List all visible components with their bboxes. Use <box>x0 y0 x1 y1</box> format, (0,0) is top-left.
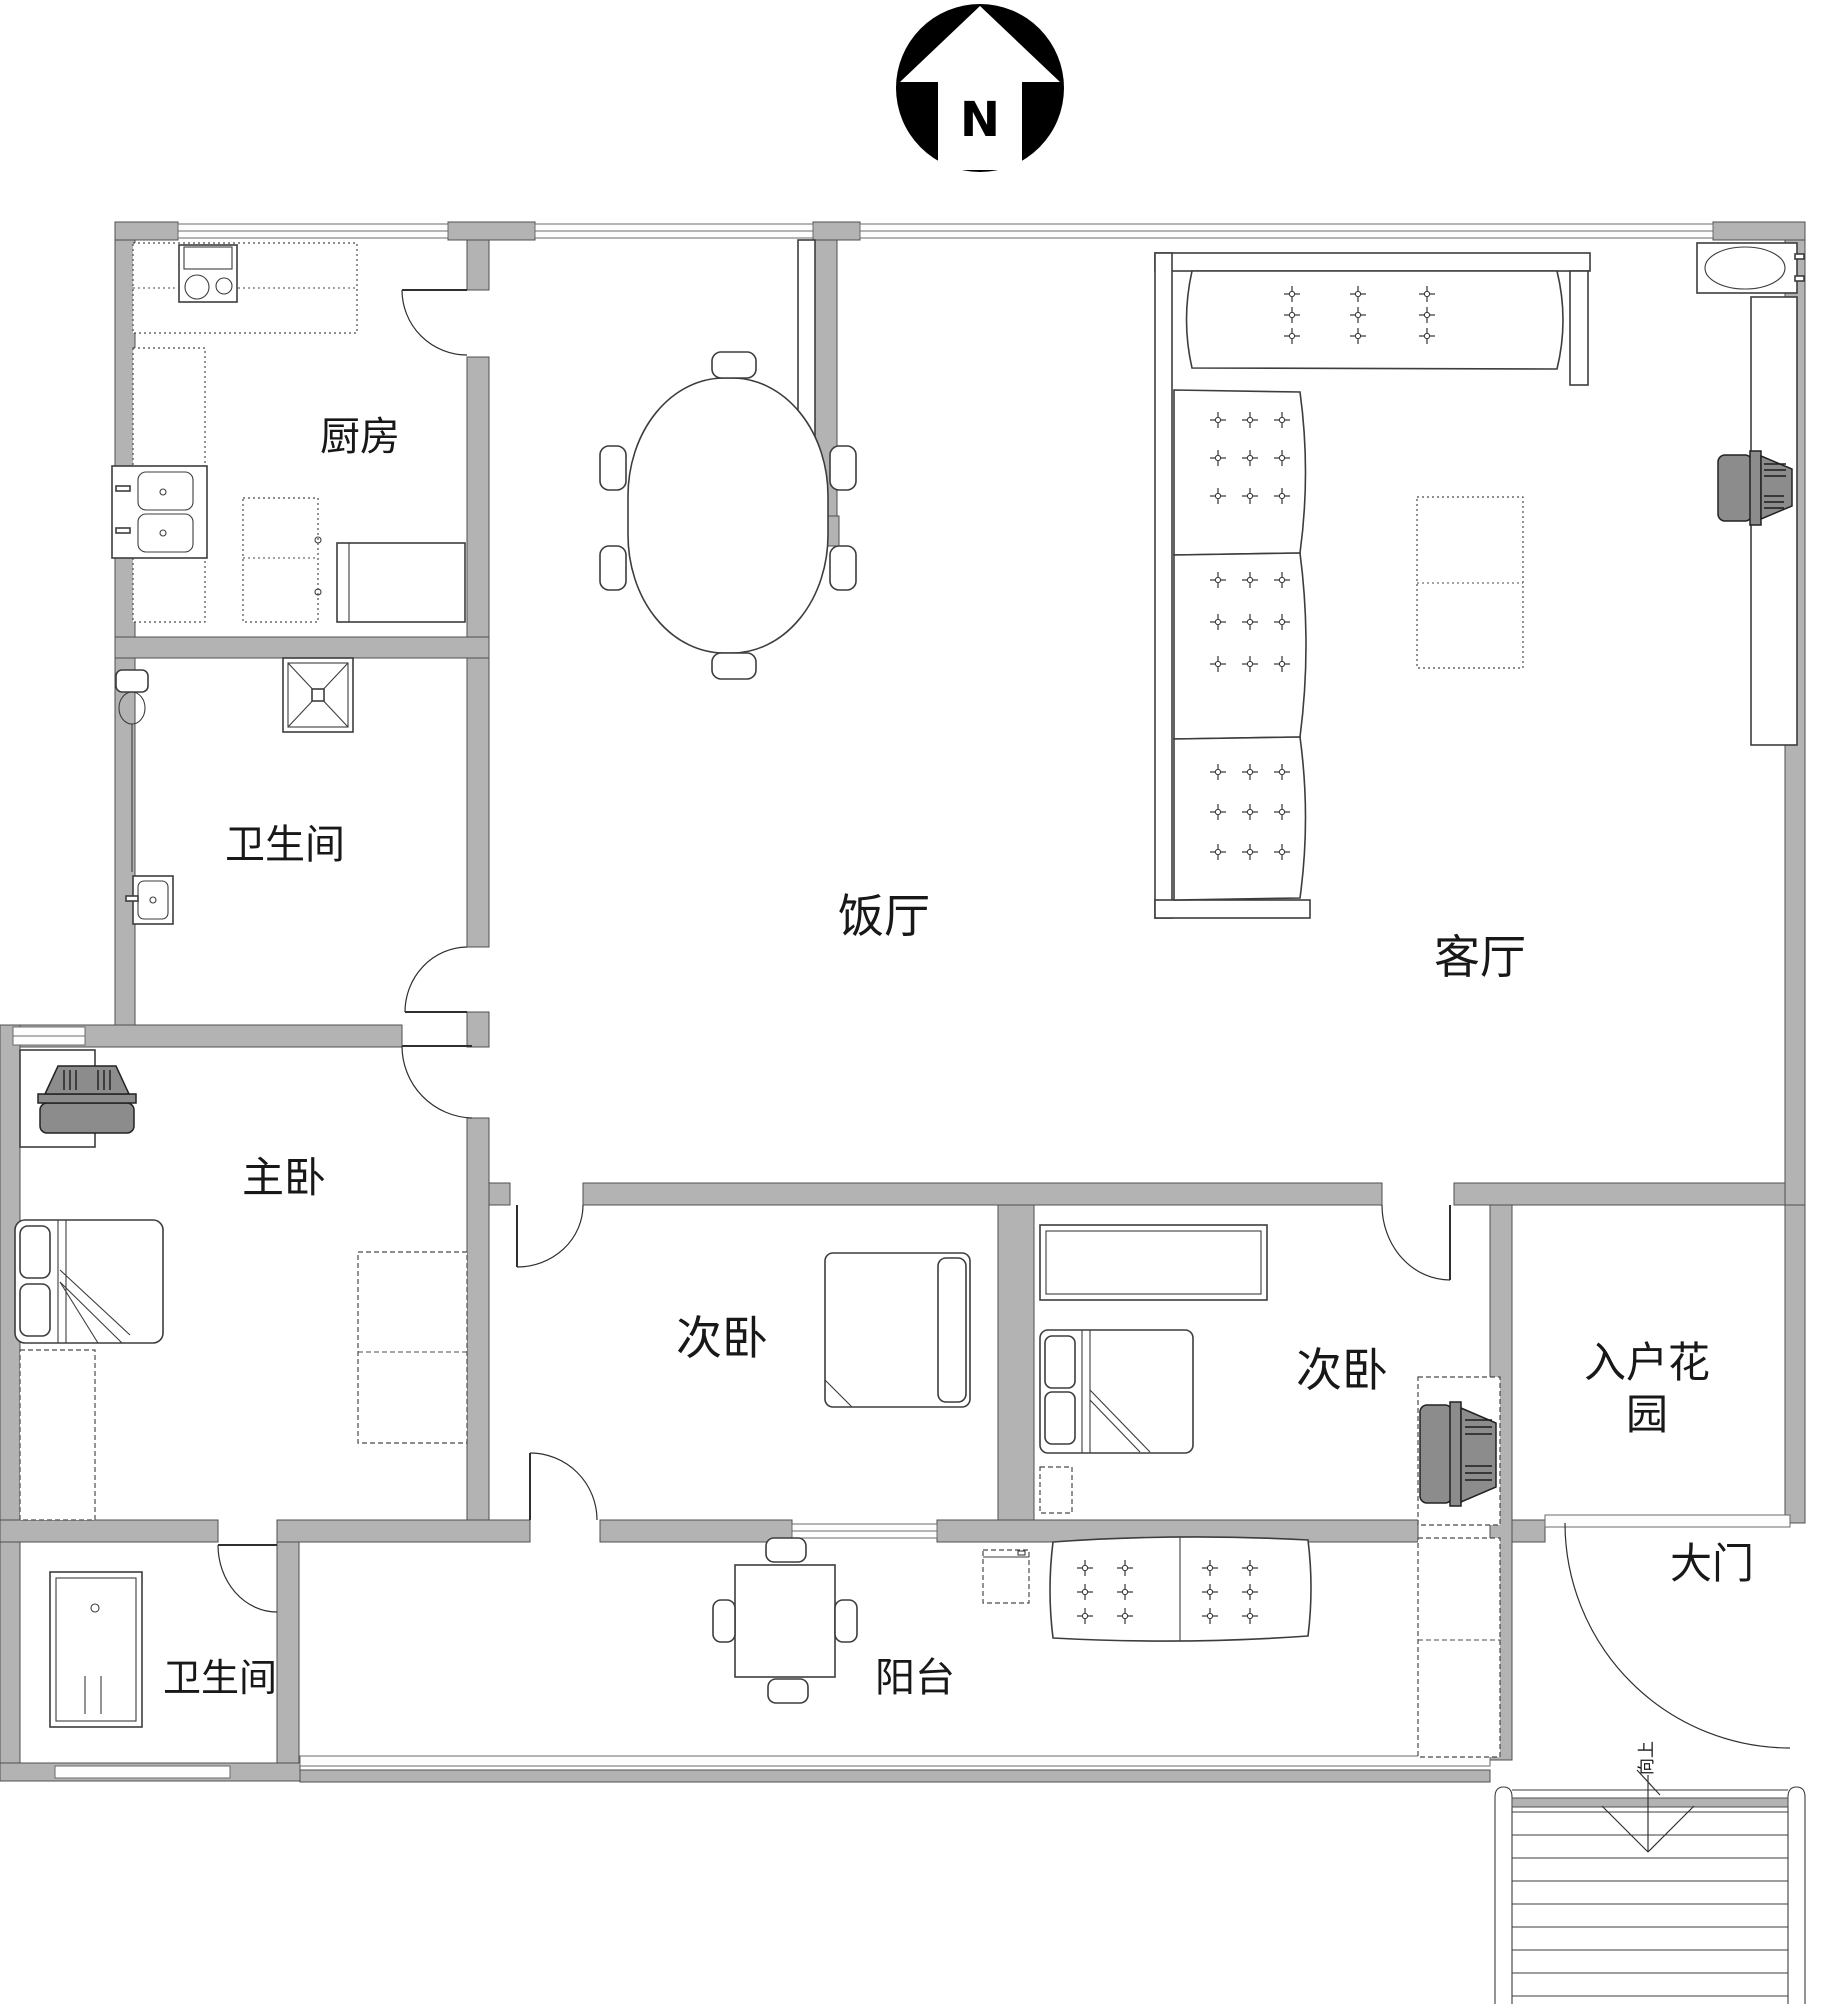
bedroom-middle-furniture <box>825 1253 970 1407</box>
dining-table <box>628 378 828 653</box>
floor-plan-canvas: 向上 N 厨房 卫生间 饭厅 客厅 主卧 次卧 次卧 入户花 园 大门 卫生间 … <box>0 0 1827 2004</box>
label-main-gate: 大门 <box>1670 1539 1754 1588</box>
sofa-side <box>1155 253 1172 918</box>
stair-direction-arrow <box>1602 1770 1694 1852</box>
wall-segment <box>467 357 489 637</box>
north-compass-icon: N <box>896 4 1064 172</box>
label-entry-garden-line2: 园 <box>1626 1390 1668 1439</box>
pillow <box>20 1284 50 1336</box>
sofa-cushion <box>1174 737 1306 900</box>
wall-segment <box>583 1183 1382 1205</box>
staircase: 向上 <box>1495 1741 1805 2004</box>
dining-chair <box>712 653 756 679</box>
pillow <box>1045 1336 1075 1388</box>
wall-segment <box>277 1520 530 1542</box>
label-entry-garden-line1: 入户花 <box>1584 1338 1710 1387</box>
tv-icon <box>1420 1402 1496 1506</box>
stair-rail-right <box>1788 1787 1805 2004</box>
stair-landing-edge <box>1512 1798 1788 1807</box>
balcony-furniture <box>713 1537 1500 1757</box>
dining-chair <box>830 546 856 590</box>
nightstand <box>1040 1467 1072 1513</box>
sofa-arm <box>1570 271 1588 385</box>
balcony-railing <box>300 1756 1490 1766</box>
dining-chair <box>600 546 626 590</box>
stair-rail-left <box>1495 1787 1512 2004</box>
shower-drain <box>312 689 324 701</box>
wall-segment <box>277 1542 299 1763</box>
kitchen-island <box>243 498 318 622</box>
bedroom-east-furniture <box>1040 1225 1500 1525</box>
wall-segment <box>600 1520 792 1542</box>
balcony-table <box>735 1565 835 1677</box>
corner-basin <box>1697 243 1797 293</box>
floor-plan: 向上 N 厨房 卫生间 饭厅 客厅 主卧 次卧 次卧 入户花 园 大门 卫生间 … <box>0 0 1827 2004</box>
wall-segment <box>448 222 535 240</box>
toilet <box>116 670 148 692</box>
label-master-bedroom: 主卧 <box>242 1153 326 1202</box>
tv-icon <box>38 1066 136 1133</box>
wall-segment <box>115 222 178 240</box>
bathroom-top-fixtures <box>116 658 353 924</box>
balcony-railing-outer <box>300 1770 1490 1782</box>
shower-stall <box>50 1572 142 1727</box>
label-bedroom-east: 次卧 <box>1296 1343 1388 1397</box>
fridge <box>337 543 465 622</box>
balcony-chair <box>768 1679 808 1703</box>
pillow <box>20 1226 50 1278</box>
wall-segment <box>467 658 489 947</box>
wall-segment <box>467 1012 489 1047</box>
wall-segment <box>489 1183 510 1205</box>
pillow <box>938 1258 966 1402</box>
wall-segment <box>813 222 860 240</box>
balcony-cabinet <box>1418 1538 1500 1757</box>
dining-chair <box>712 352 756 378</box>
wall-segment <box>115 637 489 658</box>
dining-chair <box>830 446 856 490</box>
bathroom-bottom-fixtures <box>50 1572 142 1727</box>
stove <box>179 245 237 302</box>
sofa-cushion <box>1174 390 1306 555</box>
window <box>55 1766 230 1778</box>
desk <box>1040 1225 1267 1300</box>
dining-chair <box>600 446 626 490</box>
label-balcony: 阳台 <box>875 1655 955 1701</box>
wall-segment <box>1785 1205 1805 1523</box>
sofa-back <box>1155 253 1590 271</box>
wall-segment <box>0 1520 218 1542</box>
label-dining: 饭厅 <box>838 889 930 943</box>
label-living: 客厅 <box>1434 930 1526 984</box>
wall-segment <box>1512 1520 1545 1542</box>
wall-segment <box>1713 222 1805 240</box>
balcony-chair <box>766 1538 806 1562</box>
balcony-chair <box>835 1600 857 1642</box>
compass-north-label: N <box>960 92 1000 148</box>
stair-direction-label: 向上 <box>1637 1741 1657 1775</box>
label-bathroom-top: 卫生间 <box>225 822 345 868</box>
wardrobe <box>20 1350 95 1520</box>
kitchen-furniture <box>112 243 465 622</box>
balcony-chair <box>713 1600 735 1642</box>
walls <box>0 222 1805 1781</box>
master-bedroom-furniture <box>15 1050 467 1520</box>
wall-segment <box>1454 1183 1805 1205</box>
pillow <box>1045 1392 1075 1444</box>
wall-segment <box>0 1025 20 1763</box>
living-room-furniture <box>1155 243 1804 918</box>
label-bathroom-bottom: 卫生间 <box>163 1656 277 1700</box>
label-bedroom-middle: 次卧 <box>676 1311 768 1365</box>
sofa-base <box>1155 900 1310 918</box>
wall-segment <box>467 1118 489 1520</box>
entry-threshold <box>1545 1515 1790 1527</box>
label-kitchen: 厨房 <box>320 414 400 460</box>
wall-segment <box>467 240 489 290</box>
washing-machine <box>983 1550 1029 1603</box>
sofa-cushion <box>1174 553 1306 739</box>
wall-segment <box>998 1205 1034 1520</box>
master-cabinet <box>358 1252 467 1443</box>
sofa-seat-horizontal <box>1187 271 1564 369</box>
